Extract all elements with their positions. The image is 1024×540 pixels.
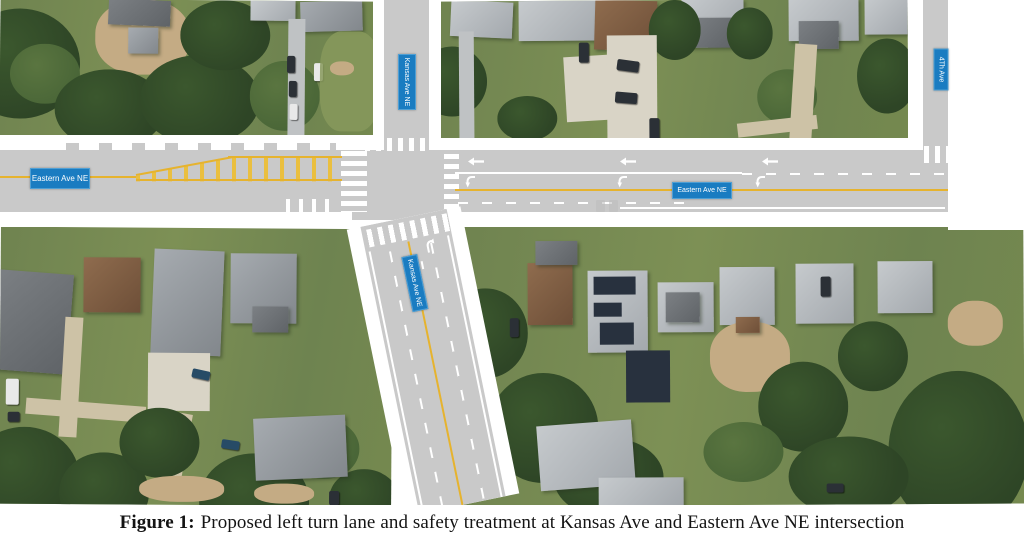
- eastern-south-curb-east: [462, 210, 948, 227]
- figure-page: Kansas Ave NE Eastern Av: [0, 0, 1024, 540]
- crosswalk-west: [341, 151, 367, 212]
- through-arrow-2: [620, 157, 637, 166]
- crosswalk-east: [444, 154, 459, 209]
- left-turn-arrow-2: [617, 175, 628, 188]
- westleg-parking-dashes: [46, 143, 336, 150]
- faint-pavement-mark: [596, 200, 605, 212]
- through-arrow-1: [468, 157, 485, 166]
- fourth-ave-curb-left: [908, 0, 924, 150]
- eastleg-lane-line-solid: [455, 172, 742, 174]
- crosswalk-fourth-ave: [924, 146, 948, 163]
- kansas-north-curb-right: [428, 0, 441, 150]
- eastleg-lane-line-dashed: [742, 173, 945, 175]
- street-label-eastern-east: Eastern Ave NE: [672, 182, 732, 199]
- drawing-background-right: [948, 0, 1024, 230]
- street-label-text: Eastern Ave NE: [32, 175, 88, 183]
- aerial-photo-top-right: [436, 0, 908, 147]
- aerial-photo-top-left: [0, 0, 375, 139]
- eastleg-edge-line: [620, 207, 945, 209]
- faint-pavement-mark: [609, 200, 618, 212]
- hatch-top-line: [228, 156, 342, 158]
- aerial-photo-bottom-right: [457, 221, 1024, 507]
- left-turn-arrow-1: [465, 175, 476, 188]
- street-label-kansas-north: Kansas Ave NE: [398, 54, 416, 110]
- hatch-bottom-line: [136, 179, 342, 181]
- westleg-ticks: [286, 199, 336, 212]
- street-label-text: Kansas Ave NE: [404, 58, 411, 107]
- street-label-text: 4Th Ave: [938, 57, 945, 83]
- crosswalk-north: [365, 138, 431, 151]
- street-label-eastern-west: Eastern Ave NE: [30, 168, 90, 189]
- figure-number: Figure 1:: [120, 512, 195, 534]
- figure-caption-text: Proposed left turn lane and safety treat…: [201, 512, 905, 534]
- figure-caption: Figure 1: Proposed left turn lane and sa…: [0, 505, 1024, 540]
- eastern-south-curb-west: [0, 212, 342, 227]
- left-turn-arrow-3: [755, 175, 766, 188]
- through-arrow-3: [762, 157, 779, 166]
- aerial-photo-bottom-left: [0, 227, 393, 507]
- street-label-text: Eastern Ave NE: [677, 187, 726, 194]
- street-label-fourth-ave: 4Th Ave: [934, 49, 949, 91]
- eastleg-skip-line: [458, 202, 690, 204]
